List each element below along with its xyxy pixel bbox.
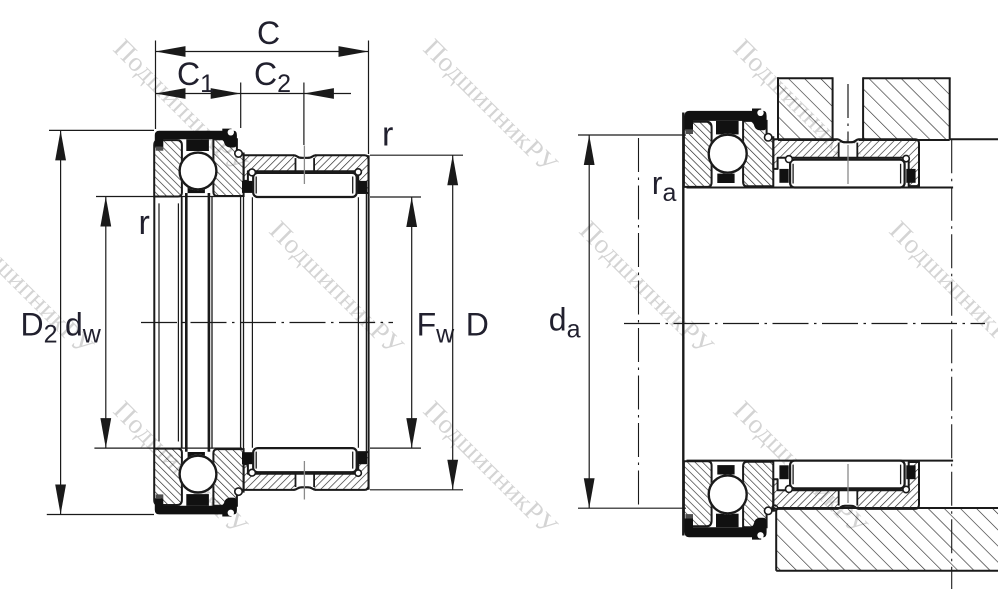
- svg-text:D: D: [466, 306, 489, 342]
- svg-text:C: C: [257, 15, 280, 51]
- svg-text:r: r: [139, 204, 150, 242]
- svg-text:r: r: [382, 116, 393, 154]
